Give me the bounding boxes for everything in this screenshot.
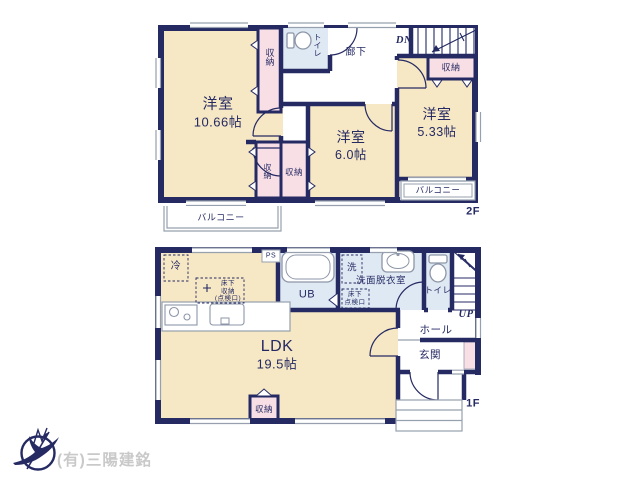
- hall-label: ホール: [420, 325, 453, 336]
- ps-label: PS: [266, 253, 276, 260]
- closet-top-2f: [258, 28, 281, 112]
- toilet-1f-label: トイレ: [424, 286, 451, 295]
- room3-2f-size: 5.33帖: [417, 126, 456, 139]
- toilet-icon-2f: [287, 32, 311, 49]
- floorplan-graphic: [0, 0, 640, 480]
- washer-label: 洗: [347, 263, 357, 273]
- toilet-2f-label: トイレ: [313, 33, 321, 57]
- closet-mid-left-2f-label: 収納: [263, 163, 271, 179]
- underfloor-hatch-line2: 点検口: [345, 299, 366, 306]
- closet-mid-right-2f-label: 収納: [285, 168, 303, 177]
- balcony-left-label: バルコニー: [197, 214, 244, 223]
- floor1-label: 1F: [466, 399, 480, 410]
- closet-stairs-2f-label: 収納: [441, 64, 460, 73]
- ldk-name: LDK: [261, 339, 294, 355]
- fridge-label: 冷: [171, 262, 182, 272]
- entrance-label: 玄関: [419, 350, 441, 361]
- bath-label: UB: [299, 290, 315, 301]
- room2-2f-size: 6.0帖: [335, 149, 367, 162]
- room2-2f-name: 洋室: [337, 130, 366, 144]
- bathtub-icon: [282, 252, 334, 282]
- ldk-size: 19.5帖: [257, 358, 298, 371]
- company-name: (有)三陽建銘: [57, 448, 152, 470]
- floor1-plan: [155, 247, 481, 431]
- washbasin-icon: [382, 251, 414, 272]
- closet-top-2f-label: 収納: [265, 48, 274, 66]
- closet-1f-label: 収納: [255, 405, 273, 414]
- floorplan-page: 洋室 10.66帖 洋室 6.0帖 洋室 5.33帖 収納 収納 収納 収納 ト…: [0, 0, 640, 480]
- porch-steps: [396, 400, 462, 431]
- room1-2f-size: 10.66帖: [194, 116, 243, 129]
- compass-north-icon: [13, 428, 59, 470]
- room1-2f-name: 洋室: [202, 97, 233, 112]
- floor2-label: 2F: [466, 207, 480, 218]
- stove-icon: [165, 305, 197, 325]
- toilet-icon-1f: [429, 255, 447, 282]
- underfloor-storage-line3: (点検口): [215, 296, 241, 303]
- hallway-label: 廊下: [346, 48, 367, 58]
- room3-2f-name: 洋室: [423, 107, 452, 121]
- stairs-up-label: UP: [459, 310, 474, 321]
- stairs-dn-label: DN: [396, 36, 412, 47]
- balcony-right-label: バルコニー: [416, 186, 461, 195]
- washroom-label: 洗面脱衣室: [356, 276, 406, 286]
- kitchen-counter: [162, 302, 290, 331]
